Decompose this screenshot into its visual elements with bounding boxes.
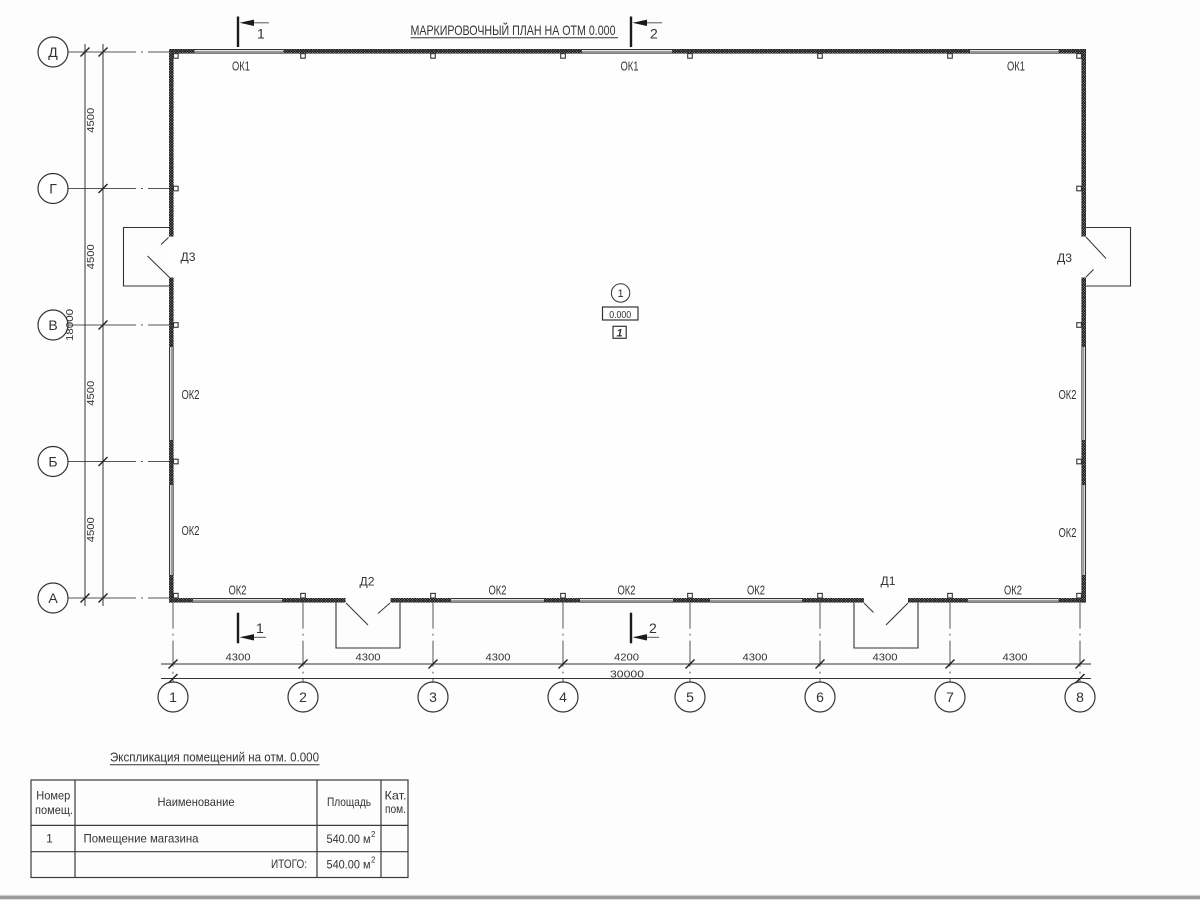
svg-text:Номер: Номер — [36, 789, 70, 803]
svg-text:4500: 4500 — [85, 108, 97, 133]
svg-text:ОК2: ОК2 — [618, 584, 636, 598]
svg-text:30000: 30000 — [610, 669, 644, 681]
svg-text:6: 6 — [816, 689, 824, 705]
svg-text:4300: 4300 — [486, 652, 511, 664]
svg-text:Д3: Д3 — [1057, 251, 1072, 265]
svg-text:Д3: Д3 — [181, 250, 196, 264]
svg-text:3: 3 — [429, 689, 437, 705]
svg-text:Д1: Д1 — [881, 574, 896, 588]
svg-text:ОК2: ОК2 — [1004, 584, 1022, 598]
svg-text:ОК2: ОК2 — [489, 584, 507, 598]
svg-text:ОК1: ОК1 — [621, 60, 639, 74]
svg-text:Д2: Д2 — [360, 575, 375, 589]
svg-text:ОК2: ОК2 — [1059, 388, 1077, 402]
svg-text:ИТОГО:: ИТОГО: — [271, 857, 307, 871]
svg-text:2: 2 — [649, 620, 657, 636]
svg-text:ОК2: ОК2 — [1059, 526, 1077, 540]
svg-text:ОК2: ОК2 — [182, 388, 200, 402]
svg-text:540.00 м: 540.00 м — [327, 832, 371, 846]
svg-text:18000: 18000 — [64, 309, 76, 341]
svg-text:2: 2 — [371, 856, 376, 865]
svg-text:4300: 4300 — [873, 652, 898, 664]
svg-text:Площадь: Площадь — [327, 795, 371, 809]
svg-text:Наименование: Наименование — [158, 795, 235, 809]
svg-text:МАРКИРОВОЧНЫЙ ПЛАН НА ОТМ 0.00: МАРКИРОВОЧНЫЙ ПЛАН НА ОТМ 0.000 — [411, 21, 616, 38]
svg-text:1: 1 — [618, 288, 624, 300]
svg-text:ОК2: ОК2 — [747, 584, 765, 598]
svg-text:Б: Б — [48, 454, 57, 470]
svg-text:2: 2 — [299, 689, 307, 705]
svg-text:540.00 м: 540.00 м — [327, 858, 371, 872]
svg-text:1: 1 — [46, 832, 53, 846]
svg-text:Кат.: Кат. — [385, 789, 407, 803]
svg-text:8: 8 — [1076, 689, 1084, 705]
svg-text:4200: 4200 — [614, 652, 639, 664]
svg-text:помещ.: помещ. — [35, 803, 73, 817]
svg-text:2: 2 — [650, 26, 658, 42]
svg-text:5: 5 — [686, 689, 694, 705]
svg-text:ОК1: ОК1 — [232, 60, 250, 74]
svg-text:0.000: 0.000 — [609, 309, 631, 321]
svg-text:2: 2 — [371, 830, 376, 839]
svg-text:1: 1 — [169, 689, 177, 705]
svg-text:А: А — [48, 590, 58, 606]
svg-text:4500: 4500 — [85, 244, 97, 269]
svg-text:4500: 4500 — [85, 517, 97, 542]
svg-text:1: 1 — [256, 620, 264, 636]
svg-text:пом.: пом. — [385, 802, 406, 816]
svg-text:ОК1: ОК1 — [1007, 60, 1025, 74]
svg-text:4500: 4500 — [85, 381, 97, 406]
svg-text:4300: 4300 — [356, 652, 381, 664]
svg-text:Д: Д — [48, 44, 58, 60]
svg-text:4300: 4300 — [743, 652, 768, 664]
svg-text:7: 7 — [946, 689, 954, 705]
svg-text:1: 1 — [617, 328, 623, 340]
svg-text:1: 1 — [257, 26, 265, 42]
svg-text:4300: 4300 — [1003, 652, 1028, 664]
svg-text:Помещение магазина: Помещение магазина — [84, 832, 199, 846]
svg-text:ОК2: ОК2 — [182, 524, 200, 538]
svg-text:В: В — [48, 317, 57, 333]
svg-text:Экспликация помещений на отм.: Экспликация помещений на отм. 0.000 — [110, 750, 319, 765]
svg-text:4: 4 — [559, 689, 567, 705]
svg-text:ОК2: ОК2 — [229, 584, 247, 598]
svg-text:Г: Г — [49, 181, 57, 197]
svg-text:4300: 4300 — [226, 652, 251, 664]
